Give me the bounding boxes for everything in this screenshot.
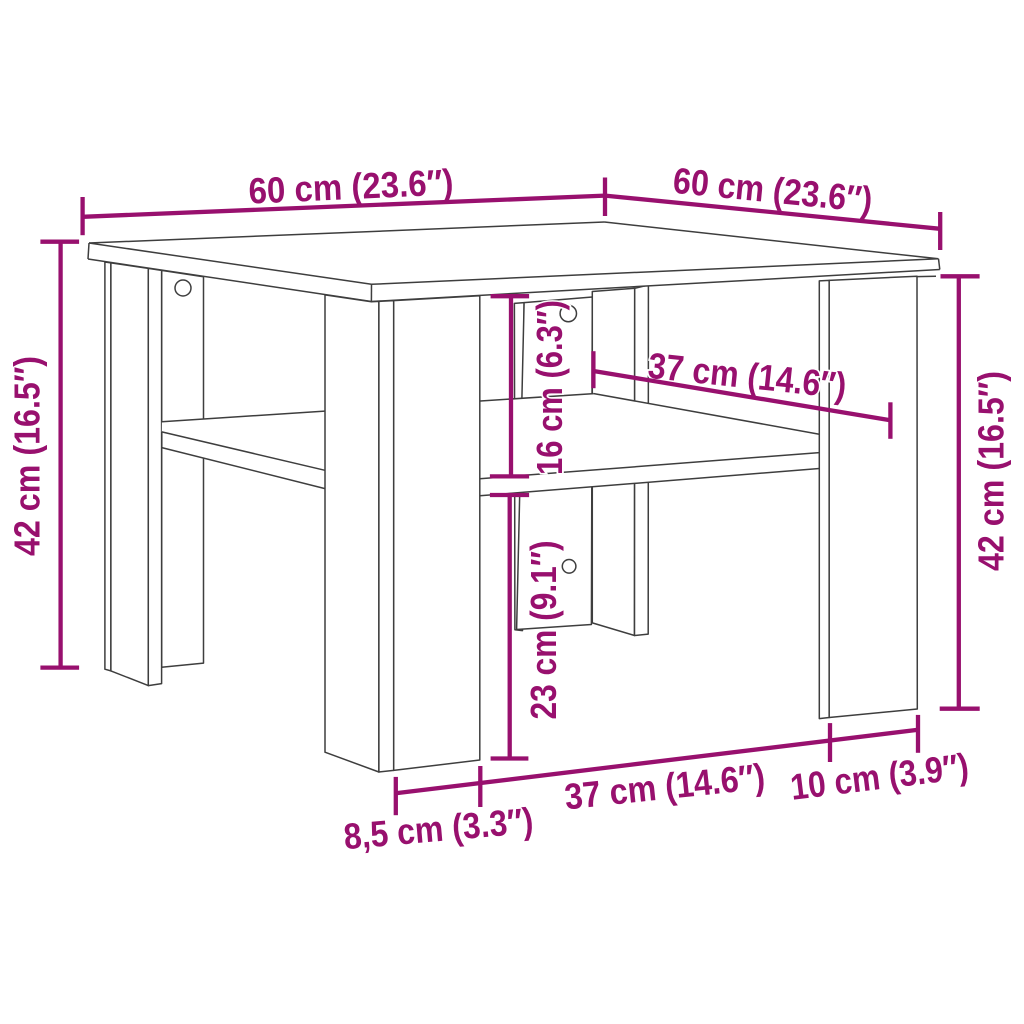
svg-text:23 cm (9.1″): 23 cm (9.1″) (523, 541, 564, 720)
svg-text:42 cm (16.5″): 42 cm (16.5″) (7, 356, 48, 556)
svg-text:42 cm (16.5″): 42 cm (16.5″) (971, 371, 1012, 571)
svg-text:16 cm (6.3″): 16 cm (6.3″) (529, 300, 570, 475)
